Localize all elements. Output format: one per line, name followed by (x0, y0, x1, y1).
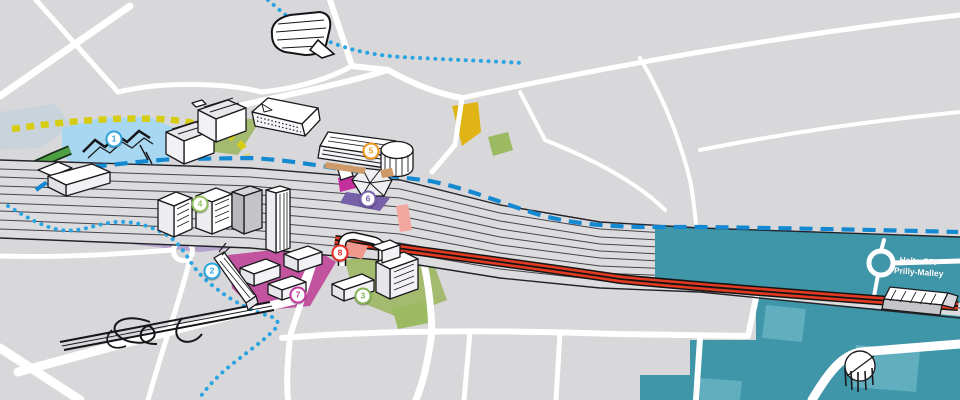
marker-6[interactable]: 6 (360, 191, 377, 208)
marker-8[interactable]: 8 (332, 245, 349, 262)
illustrated-map: 1 2 3 4 5 6 7 8 Halte CFF Prilly-Malley (0, 0, 960, 400)
marker-5[interactable]: 5 (363, 143, 380, 160)
marker-2[interactable]: 2 (204, 263, 221, 280)
map-canvas (0, 0, 960, 400)
marker-7[interactable]: 7 (290, 287, 307, 304)
marker-3[interactable]: 3 (355, 288, 372, 305)
stadium-sketch (272, 12, 334, 58)
marker-1[interactable]: 1 (106, 131, 123, 148)
marker-4[interactable]: 4 (192, 196, 209, 213)
